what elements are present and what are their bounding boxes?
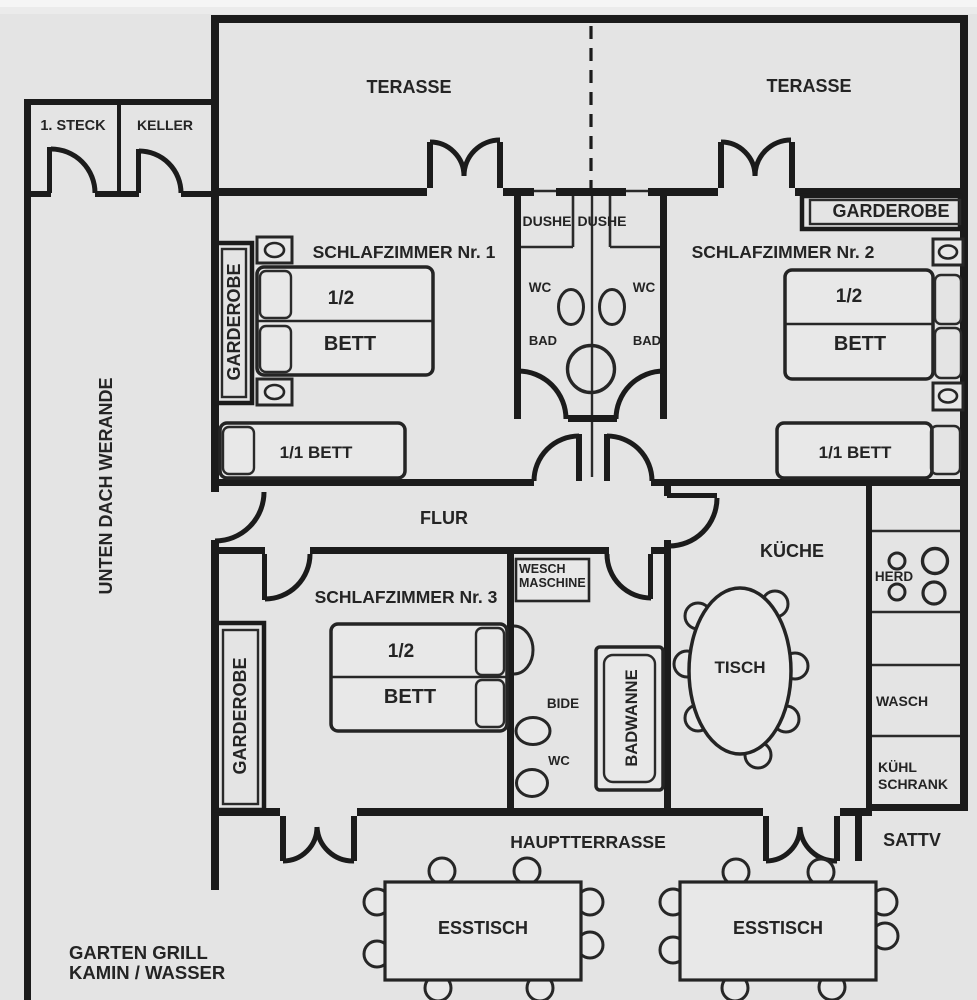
svg-text:GARDEROBE: GARDEROBE <box>224 263 244 380</box>
svg-text:MASCHINE: MASCHINE <box>519 576 586 590</box>
svg-text:WC: WC <box>633 280 656 295</box>
svg-text:SCHLAFZIMMER Nr. 3: SCHLAFZIMMER Nr. 3 <box>315 587 498 607</box>
svg-text:BETT: BETT <box>834 333 886 355</box>
svg-text:1/2: 1/2 <box>328 288 354 309</box>
svg-text:1/2: 1/2 <box>836 286 862 307</box>
svg-text:SATTV: SATTV <box>883 830 941 850</box>
svg-text:KELLER: KELLER <box>137 117 193 133</box>
svg-text:KÜHL: KÜHL <box>878 759 917 775</box>
svg-text:BAD: BAD <box>633 333 661 348</box>
svg-text:GARTEN GRILL: GARTEN GRILL <box>69 942 208 963</box>
svg-text:GARDEROBE: GARDEROBE <box>832 201 949 221</box>
svg-text:1/1 BETT: 1/1 BETT <box>280 443 353 462</box>
svg-text:WESCH: WESCH <box>519 562 566 576</box>
svg-text:BETT: BETT <box>384 686 436 708</box>
svg-text:DUSHE: DUSHE <box>522 213 571 229</box>
svg-text:WC: WC <box>529 280 552 295</box>
svg-text:WC: WC <box>548 753 570 768</box>
svg-text:1/1 BETT: 1/1 BETT <box>819 443 892 462</box>
svg-text:BIDE: BIDE <box>547 696 579 711</box>
svg-text:1/2: 1/2 <box>388 641 414 662</box>
svg-text:TERASSE: TERASSE <box>366 77 451 97</box>
svg-text:SCHLAFZIMMER Nr. 2: SCHLAFZIMMER Nr. 2 <box>692 242 875 262</box>
svg-text:SCHLAFZIMMER Nr. 1: SCHLAFZIMMER Nr. 1 <box>313 242 496 262</box>
svg-text:KÜCHE: KÜCHE <box>760 541 824 561</box>
svg-text:TERASSE: TERASSE <box>766 76 851 96</box>
svg-text:HAUPTTERRASSE: HAUPTTERRASSE <box>510 832 666 852</box>
svg-text:KAMIN / WASSER: KAMIN / WASSER <box>69 962 225 983</box>
svg-text:BETT: BETT <box>324 333 376 355</box>
svg-text:UNTEN DACH WERANDE: UNTEN DACH WERANDE <box>96 378 116 595</box>
svg-text:BADWANNE: BADWANNE <box>623 669 641 766</box>
svg-text:BAD: BAD <box>529 333 557 348</box>
svg-text:TISCH: TISCH <box>715 658 766 677</box>
svg-text:ESSTISCH: ESSTISCH <box>733 918 823 938</box>
svg-text:WASCH: WASCH <box>876 693 928 709</box>
svg-text:HERD: HERD <box>875 569 914 584</box>
svg-text:SCHRANK: SCHRANK <box>878 776 948 792</box>
svg-text:GARDEROBE: GARDEROBE <box>230 657 250 774</box>
svg-text:DUSHE: DUSHE <box>577 213 626 229</box>
svg-text:1. STECK: 1. STECK <box>40 118 106 134</box>
svg-text:FLUR: FLUR <box>420 508 468 528</box>
svg-text:ESSTISCH: ESSTISCH <box>438 918 528 938</box>
